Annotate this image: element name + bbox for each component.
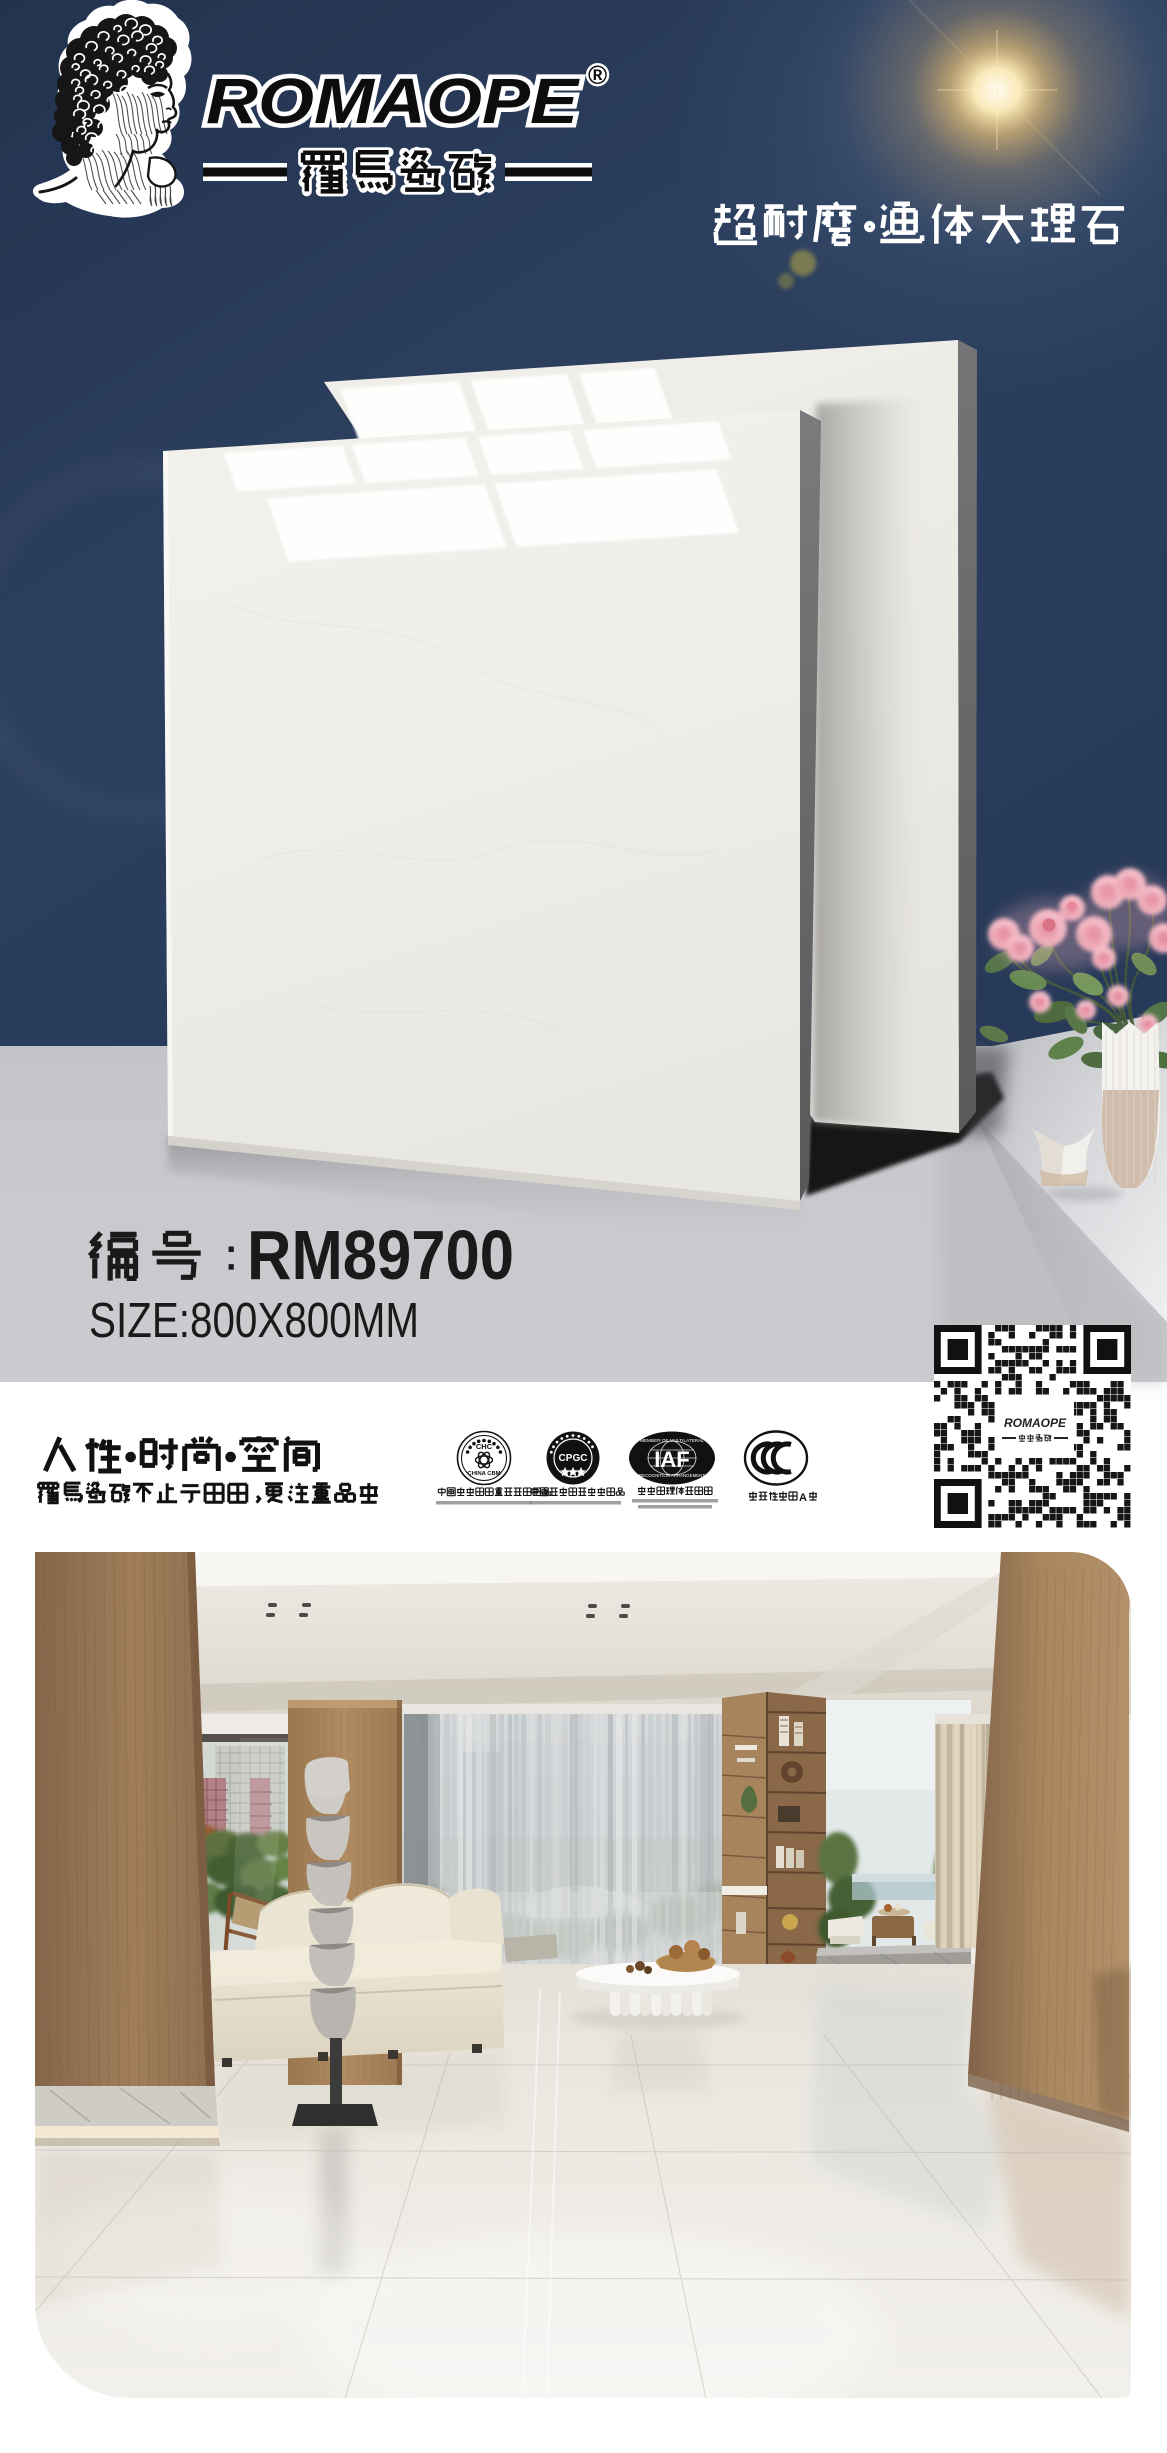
svg-text:CHC: CHC	[476, 1442, 493, 1451]
svg-text:A: A	[799, 1492, 807, 1504]
svg-text:ROMAOPE: ROMAOPE	[206, 65, 581, 137]
svg-text:CHINA CBM: CHINA CBM	[468, 1471, 501, 1477]
svg-text:ROMAOPE: ROMAOPE	[1004, 1416, 1067, 1430]
svg-text:®: ®	[588, 60, 607, 90]
svg-text:CPGC: CPGC	[559, 1453, 588, 1464]
svg-text:MEMBER OF MULTILATERAL: MEMBER OF MULTILATERAL	[640, 1438, 704, 1443]
svg-text:RM89700: RM89700	[247, 1216, 514, 1294]
svg-text:RECOGNITION ARRANGEMENT: RECOGNITION ARRANGEMENT	[639, 1473, 705, 1478]
svg-text:IAF: IAF	[654, 1447, 689, 1472]
svg-text:SIZE:800X800MM: SIZE:800X800MM	[89, 1294, 419, 1348]
